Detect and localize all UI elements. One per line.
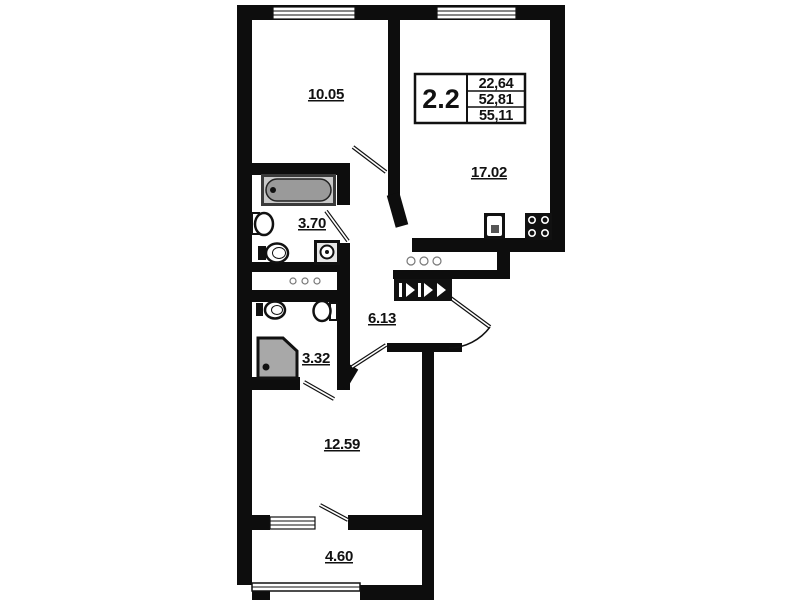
- window-icon: [437, 7, 516, 19]
- wall-left: [237, 5, 252, 585]
- room-label-top-right: 17.02: [471, 164, 507, 181]
- room-label-balcony: 4.60: [325, 548, 353, 565]
- unit-info-box: 2.2 22,64 52,81 55,11: [415, 74, 525, 124]
- stove-icon: [525, 213, 552, 240]
- washing-machine-icon: [314, 240, 340, 265]
- wall-divider-rooms: [388, 20, 400, 198]
- wall-divider-diagonal: [393, 194, 402, 226]
- window-icon: [273, 7, 355, 19]
- wall-bottom-room-right: [348, 515, 434, 530]
- door-swing-icon: [352, 345, 386, 367]
- wall-bottom-room-left: [237, 515, 270, 530]
- unit-area-3: 55,11: [479, 108, 513, 124]
- wall-below-shaft: [393, 270, 510, 279]
- room-label-hallway: 6.13: [368, 310, 396, 327]
- toilet-icon: [252, 213, 273, 235]
- wall-right-bottom: [422, 343, 434, 600]
- unit-area-2: 52,81: [479, 92, 514, 108]
- door-swing-icon: [326, 211, 348, 241]
- window-icon: [270, 517, 315, 529]
- floor-plan: 10.05 17.02 3.70 6.13 3.32 12.59 4.60 2.…: [0, 0, 799, 600]
- door-swing-icon: [320, 505, 348, 520]
- shower-icon: [258, 338, 297, 378]
- wall-kitchen-bottom: [412, 238, 565, 252]
- entry-door-swing-icon: [448, 296, 490, 348]
- balcony-glazing: [252, 583, 360, 591]
- door-swing-icon: [353, 147, 386, 172]
- room-label-bottom: 12.59: [324, 436, 360, 453]
- wall-bath-top: [252, 163, 345, 175]
- door-swing-icon: [304, 382, 334, 399]
- pipe-riser-icon: [290, 278, 320, 284]
- wall-balcony-corner-right: [360, 585, 434, 600]
- wall-bath-right-upper: [337, 163, 350, 205]
- sink-icon: [258, 244, 288, 263]
- unit-number: 2.2: [422, 84, 460, 114]
- wall-right-top: [550, 5, 565, 252]
- room-labels: 10.05 17.02 3.70 6.13 3.32 12.59 4.60: [298, 86, 507, 565]
- room-label-wc: 3.32: [302, 350, 330, 367]
- unit-area-1: 22,64: [479, 76, 514, 92]
- bathtub-icon: [261, 174, 336, 206]
- toilet-icon: [314, 301, 338, 321]
- room-label-top-left: 10.05: [308, 86, 344, 103]
- sink-icon: [256, 302, 285, 319]
- vent-duct-icon: [394, 279, 452, 301]
- floor-plan-page: 10.05 17.02 3.70 6.13 3.32 12.59 4.60 2.…: [0, 0, 799, 600]
- pipe-riser-icon: [407, 257, 441, 265]
- room-label-bathroom: 3.70: [298, 215, 326, 232]
- kitchen-sink-icon: [484, 213, 505, 239]
